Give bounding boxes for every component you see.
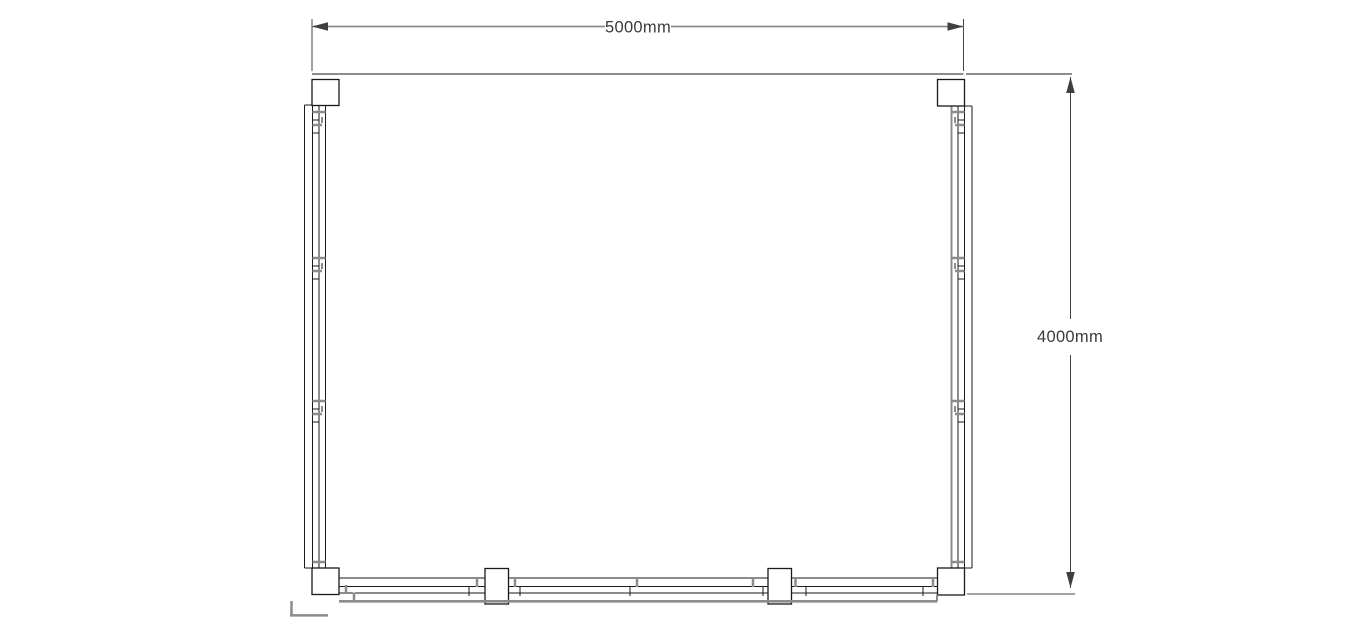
height-dimension: 4000mm	[966, 74, 1103, 594]
floor-plan-canvas: 5000mm 4000mm	[0, 0, 1356, 624]
width-dimension: 5000mm	[312, 19, 964, 72]
dim-arrow-down	[1066, 572, 1075, 588]
base-edges	[290, 595, 938, 617]
dim-arrow-left	[312, 22, 328, 31]
width-dimension-label: 5000mm	[605, 19, 671, 37]
corner-post-bottom-left	[312, 568, 339, 595]
intermediate-post	[485, 569, 509, 605]
floor-plan-page: 5000mm 4000mm	[0, 0, 1356, 624]
corner-post-bottom-right	[938, 568, 965, 595]
height-dimension-label: 4000mm	[1037, 328, 1103, 346]
intermediate-post	[768, 569, 792, 605]
right-wall	[952, 106, 973, 568]
left-wall	[305, 105, 326, 568]
corner-post-top-left	[312, 80, 339, 106]
posts	[312, 80, 965, 605]
dim-arrow-up	[1066, 77, 1075, 93]
dim-arrow-right	[948, 22, 964, 31]
bottom-wall-joints	[346, 578, 933, 600]
corner-post-top-right	[938, 80, 965, 107]
